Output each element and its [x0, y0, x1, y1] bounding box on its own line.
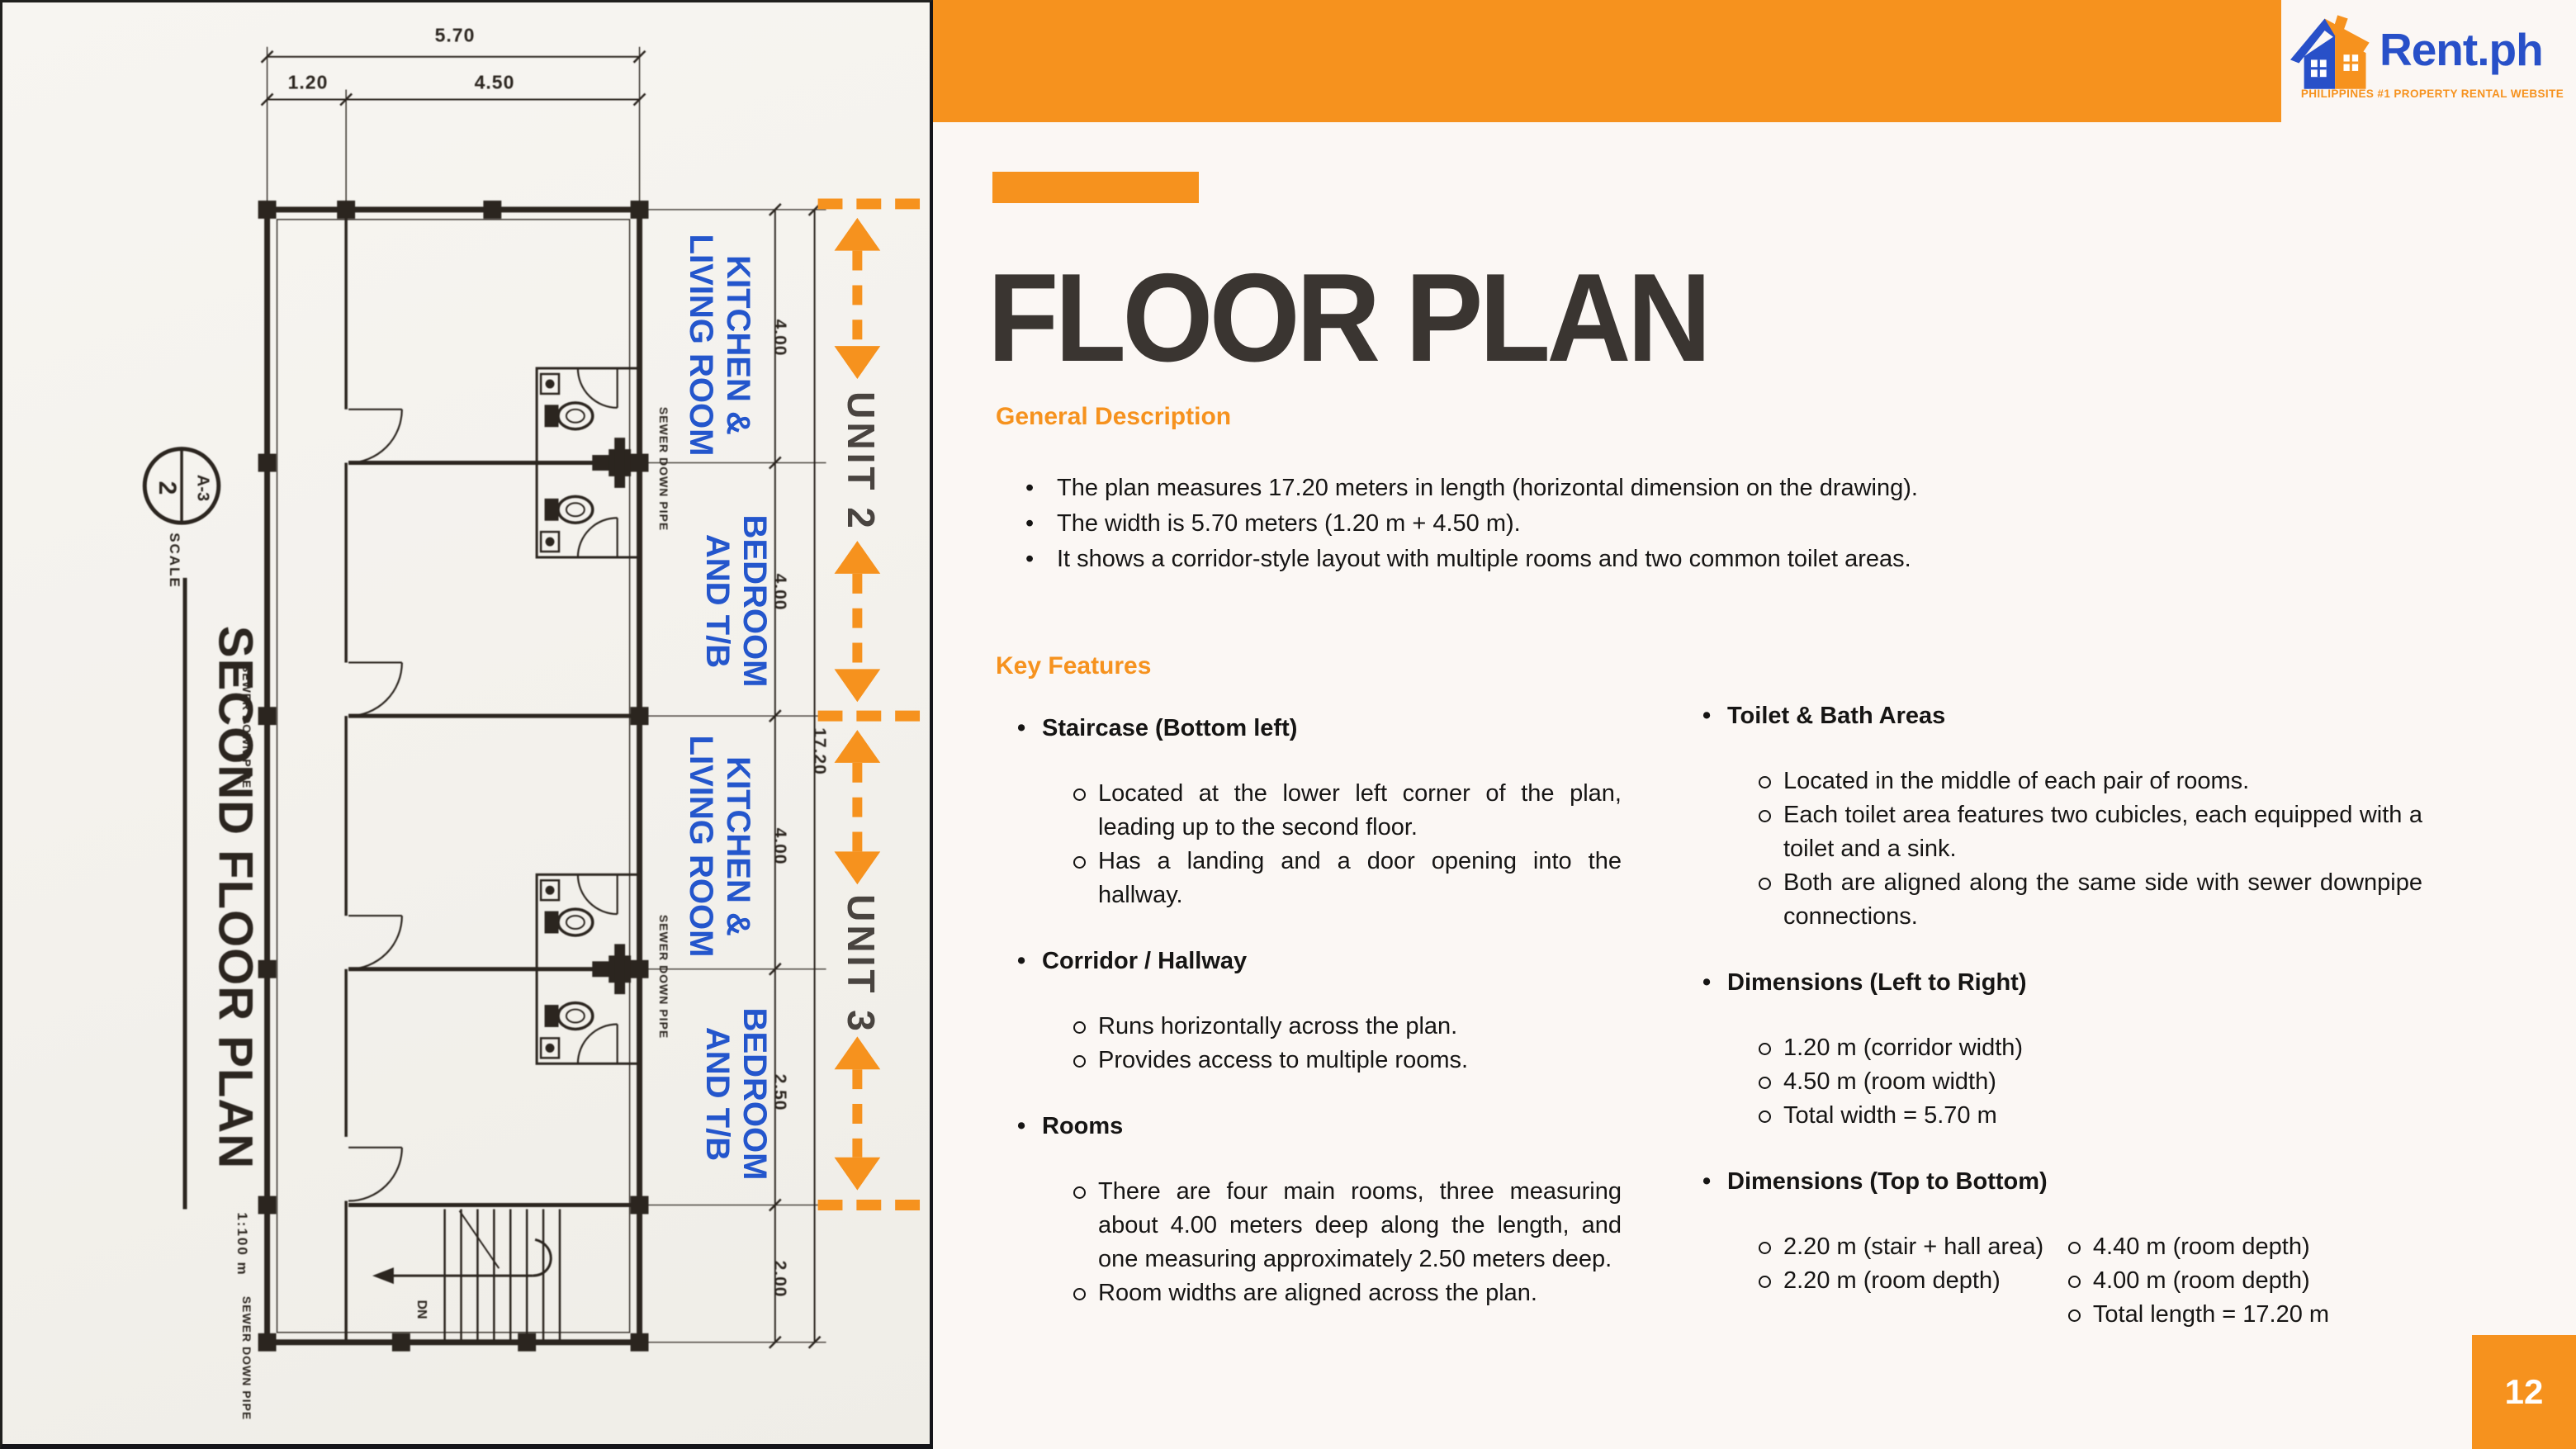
- list-item: Total width = 5.70 m: [1757, 1099, 2422, 1133]
- circle-bullet-icon: [2067, 1264, 2093, 1298]
- room-label-line: LIVING ROOM: [682, 234, 719, 457]
- list-item: 1.20 m (corridor width): [1757, 1031, 2422, 1065]
- unit-3-label: UNIT 3: [839, 894, 883, 1035]
- circle-bullet-icon: [1072, 1175, 1098, 1276]
- list-item: Each toilet area features two cubicles, …: [1757, 798, 2422, 866]
- general-description-list: •The plan measures 17.20 meters in lengt…: [1025, 471, 2388, 577]
- list-item: •It shows a corridor-style layout with m…: [1025, 542, 2388, 577]
- room-label-line: BEDROOM: [736, 515, 773, 688]
- list-item: •The plan measures 17.20 meters in lengt…: [1025, 471, 2388, 506]
- circle-bullet-icon: [1072, 777, 1098, 845]
- circle-bullet-icon: [1072, 1010, 1098, 1044]
- room-label-line: AND T/B: [698, 1008, 736, 1181]
- house-icon: [2290, 12, 2376, 91]
- room-label-bedroom-unit2: BEDROOM AND T/B: [698, 515, 773, 688]
- bullet-icon: •: [1025, 542, 1057, 577]
- feature-rooms: •Rooms There are four main rooms, three …: [1017, 1110, 1622, 1310]
- bullet-icon: •: [1017, 1110, 1042, 1144]
- bullet-icon: •: [1025, 471, 1057, 506]
- list-item: Runs horizontally across the plan.: [1072, 1010, 1622, 1044]
- list-item: Located at the lower left corner of the …: [1072, 777, 1622, 845]
- unit-marker-overlay: [2, 2, 930, 1445]
- bullet-icon: •: [1025, 506, 1057, 542]
- feature-dimensions-tb: •Dimensions (Top to Bottom) 2.20 m (stai…: [1702, 1165, 2422, 1332]
- page-number: 12: [2505, 1372, 2544, 1412]
- key-features-column-1: •Staircase (Bottom left) Located at the …: [1017, 712, 1622, 1342]
- feature-sub-list: Located at the lower left corner of the …: [1072, 777, 1622, 912]
- feature-toilet-bath: •Toilet & Bath Areas Located in the midd…: [1702, 699, 2422, 934]
- circle-bullet-icon: [1072, 1276, 1098, 1310]
- circle-bullet-icon: [1757, 1065, 1783, 1099]
- dimensions-tb-col-b: 4.40 m (room depth) 4.00 m (room depth) …: [2067, 1230, 2422, 1332]
- page-title: FLOOR PLAN: [987, 246, 1707, 391]
- key-features-heading: Key Features: [996, 652, 1151, 680]
- feature-dimensions-lr: •Dimensions (Left to Right) 1.20 m (corr…: [1702, 966, 2422, 1133]
- room-label-line: BEDROOM: [736, 1008, 773, 1181]
- room-label-kitchen-living-unit3: KITCHEN & LIVING ROOM: [682, 736, 756, 958]
- list-item: Room widths are aligned across the plan.: [1072, 1276, 1622, 1310]
- circle-bullet-icon: [1757, 866, 1783, 934]
- bullet-icon: •: [1017, 945, 1042, 978]
- room-label-bedroom-unit3: BEDROOM AND T/B: [698, 1008, 773, 1181]
- list-item: There are four main rooms, three measuri…: [1072, 1175, 1622, 1276]
- bullet-icon: •: [1017, 712, 1042, 746]
- circle-bullet-icon: [1072, 1044, 1098, 1077]
- list-item: Provides access to multiple rooms.: [1072, 1044, 1622, 1077]
- page-number-badge: 12: [2472, 1335, 2576, 1449]
- rentph-logo: Rent.ph PHILIPPINES #1 PROPERTY RENTAL W…: [2289, 5, 2576, 117]
- list-item-text: It shows a corridor-style layout with mu…: [1057, 542, 1911, 577]
- list-item-text: The width is 5.70 meters (1.20 m + 4.50 …: [1057, 506, 1521, 542]
- feature-sub-list: 1.20 m (corridor width) 4.50 m (room wid…: [1757, 1031, 2422, 1133]
- logo-tagline: PHILIPPINES #1 PROPERTY RENTAL WEBSITE: [2289, 88, 2576, 100]
- dimensions-tb-columns: 2.20 m (stair + hall area) 2.20 m (room …: [1757, 1230, 2422, 1332]
- circle-bullet-icon: [1757, 798, 1783, 866]
- circle-bullet-icon: [1072, 845, 1098, 912]
- list-item: 4.40 m (room depth): [2067, 1230, 2422, 1264]
- circle-bullet-icon: [1757, 765, 1783, 798]
- title-accent-bar: [992, 172, 1199, 203]
- general-description-heading: General Description: [996, 403, 1231, 431]
- feature-title: •Corridor / Hallway: [1017, 945, 1622, 978]
- room-label-line: KITCHEN &: [719, 736, 756, 958]
- circle-bullet-icon: [2067, 1230, 2093, 1264]
- unit-2-label: UNIT 2: [839, 391, 883, 532]
- feature-sub-list: Located in the middle of each pair of ro…: [1757, 765, 2422, 934]
- circle-bullet-icon: [1757, 1230, 1783, 1264]
- logo-brand-text: Rent.ph: [2379, 23, 2543, 76]
- bullet-icon: •: [1702, 699, 1727, 733]
- slide: 5.70 1.20 4.50 4.00 4.00 4.00 2.50 2.00 …: [0, 0, 2576, 1449]
- feature-title: •Dimensions (Top to Bottom): [1702, 1165, 2422, 1199]
- key-features-column-2: •Toilet & Bath Areas Located in the midd…: [1702, 699, 2422, 1332]
- list-item: Located in the middle of each pair of ro…: [1757, 765, 2422, 798]
- list-item: 4.50 m (room width): [1757, 1065, 2422, 1099]
- list-item: Has a landing and a door opening into th…: [1072, 845, 1622, 912]
- room-label-kitchen-living-unit2: KITCHEN & LIVING ROOM: [682, 234, 756, 457]
- dimensions-tb-col-a: 2.20 m (stair + hall area) 2.20 m (room …: [1757, 1230, 2067, 1332]
- bullet-icon: •: [1702, 1165, 1727, 1199]
- circle-bullet-icon: [2067, 1298, 2093, 1332]
- list-item: Total length = 17.20 m: [2067, 1298, 2422, 1332]
- list-item: 2.20 m (stair + hall area): [1757, 1230, 2067, 1264]
- top-orange-band: [933, 0, 2281, 122]
- list-item-text: The plan measures 17.20 meters in length…: [1057, 471, 1918, 506]
- bullet-icon: •: [1702, 966, 1727, 1000]
- list-item: •The width is 5.70 meters (1.20 m + 4.50…: [1025, 506, 2388, 542]
- feature-sub-list: There are four main rooms, three measuri…: [1072, 1175, 1622, 1310]
- feature-staircase: •Staircase (Bottom left) Located at the …: [1017, 712, 1622, 912]
- feature-sub-list: Runs horizontally across the plan. Provi…: [1072, 1010, 1622, 1077]
- list-item: Both are aligned along the same side wit…: [1757, 866, 2422, 934]
- feature-title: •Dimensions (Left to Right): [1702, 966, 2422, 1000]
- room-label-line: LIVING ROOM: [682, 736, 719, 958]
- room-label-line: AND T/B: [698, 515, 736, 688]
- feature-title: •Staircase (Bottom left): [1017, 712, 1622, 746]
- list-item: 4.00 m (room depth): [2067, 1264, 2422, 1298]
- list-item: 2.20 m (room depth): [1757, 1264, 2067, 1298]
- circle-bullet-icon: [1757, 1031, 1783, 1065]
- feature-title: •Rooms: [1017, 1110, 1622, 1144]
- feature-corridor: •Corridor / Hallway Runs horizontally ac…: [1017, 945, 1622, 1077]
- floor-plan-scan: 5.70 1.20 4.50 4.00 4.00 4.00 2.50 2.00 …: [0, 0, 933, 1449]
- circle-bullet-icon: [1757, 1099, 1783, 1133]
- feature-title: •Toilet & Bath Areas: [1702, 699, 2422, 733]
- room-label-line: KITCHEN &: [719, 234, 756, 457]
- circle-bullet-icon: [1757, 1264, 1783, 1298]
